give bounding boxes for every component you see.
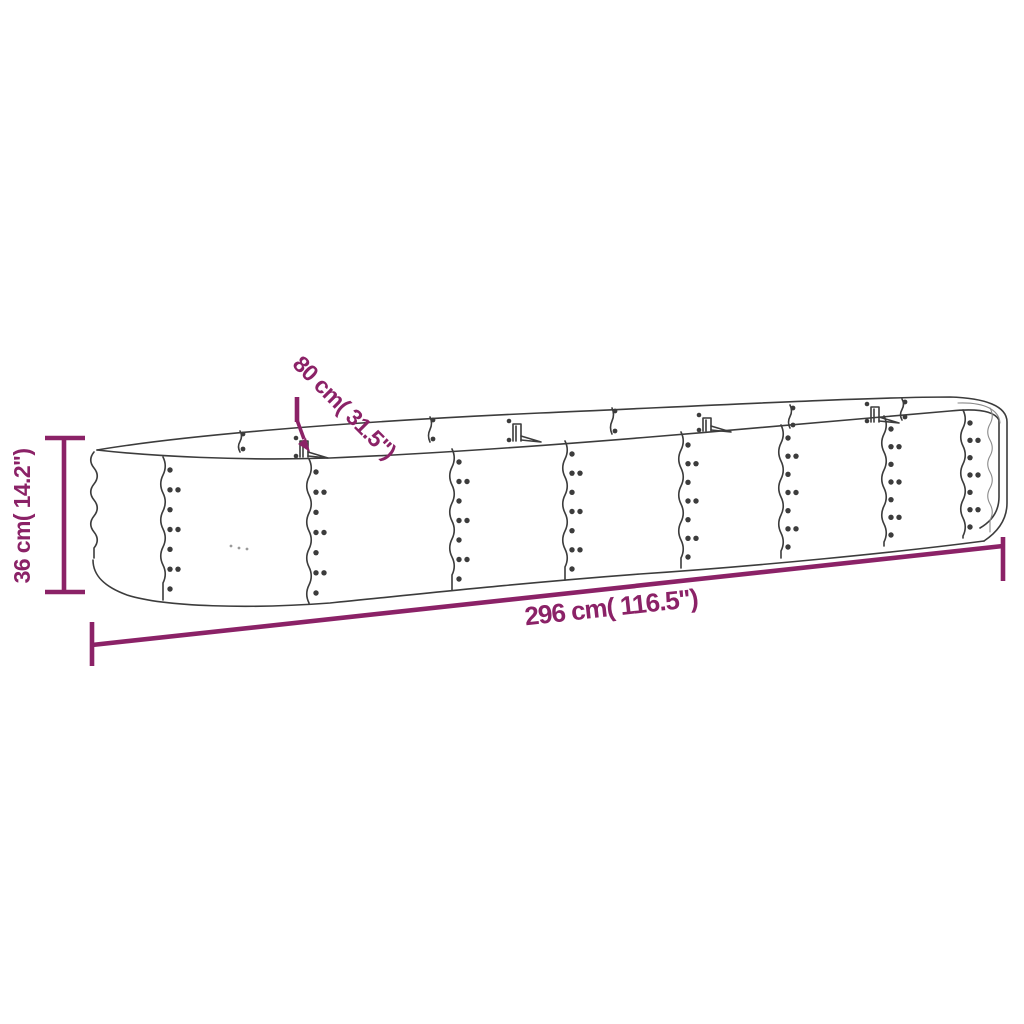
bolt-dot	[975, 507, 980, 512]
bolt-dot	[903, 415, 908, 420]
bolt-dot	[888, 497, 893, 502]
bolt-dot	[685, 498, 690, 503]
bolt-dot	[431, 418, 436, 423]
bolt-dot	[685, 554, 690, 559]
bolt-dot	[569, 566, 574, 571]
bolt-dot	[313, 590, 318, 595]
bolt-dot	[967, 524, 972, 529]
bolt-dot	[896, 479, 901, 484]
bolt-dot	[313, 530, 318, 535]
bolt-dot	[569, 470, 574, 475]
bolt-dot	[167, 527, 172, 532]
bolt-dot	[456, 518, 461, 523]
bolt-dot	[167, 566, 172, 571]
bolt-dot	[685, 536, 690, 541]
height-dimension-label: 36 cm( 14.2")	[9, 449, 35, 584]
bolt-dot	[903, 400, 908, 405]
bolt-dot	[313, 489, 318, 494]
bolt-dot	[294, 454, 299, 459]
bolt-dot	[294, 436, 299, 441]
bolt-dot	[685, 517, 690, 522]
bolt-dot	[967, 507, 972, 512]
bolt-dot	[167, 467, 172, 472]
bolt-dot	[577, 470, 582, 475]
bolt-dot	[456, 459, 461, 464]
surface-mark	[230, 545, 233, 548]
bolt-dot	[241, 432, 246, 437]
bolt-dot	[693, 536, 698, 541]
rim-opening-edge	[97, 410, 999, 528]
panel-seam	[563, 441, 568, 580]
bolt-dot	[507, 419, 512, 424]
bolt-dot	[888, 479, 893, 484]
bolt-dot	[975, 438, 980, 443]
bolt-dot	[785, 453, 790, 458]
bolt-dot	[175, 566, 180, 571]
bolt-dot	[464, 557, 469, 562]
bolt-dot	[685, 480, 690, 485]
bolt-dot	[785, 490, 790, 495]
product-dimension-diagram: 36 cm( 14.2") 80 cm( 31.5") 296 cm( 116.…	[0, 0, 1024, 1024]
bolt-dot	[167, 547, 172, 552]
panel-seam	[779, 425, 784, 558]
panel-seams	[161, 410, 966, 604]
bolt-dot	[321, 489, 326, 494]
bolt-dot	[865, 402, 870, 407]
bolt-dot	[967, 420, 972, 425]
panel-seam	[450, 449, 455, 590]
rim-clip-flap	[521, 436, 541, 442]
bolt-dot	[793, 453, 798, 458]
bolt-dot	[577, 509, 582, 514]
panel-seam	[882, 416, 887, 546]
bolt-dot	[967, 472, 972, 477]
bolt-dot	[313, 510, 318, 515]
bolt-dot	[693, 498, 698, 503]
bolt-dot	[865, 419, 870, 424]
panel-seam	[307, 459, 312, 604]
left-end-corrugation	[91, 452, 98, 558]
surface-mark	[246, 548, 249, 551]
rim-clip	[513, 424, 521, 441]
bolt-dot	[456, 557, 461, 562]
bolt-dot	[321, 570, 326, 575]
bolt-dot	[791, 423, 796, 428]
bolt-dot	[577, 547, 582, 552]
bolt-dot	[569, 528, 574, 533]
bolt-dot	[785, 526, 790, 531]
bolt-dot	[888, 444, 893, 449]
bolt-dot	[685, 442, 690, 447]
bolt-dot	[613, 409, 618, 414]
rim-clip	[703, 418, 711, 431]
bolt-dot	[569, 451, 574, 456]
garden-bed-line-art	[91, 397, 1007, 606]
panel-seam	[161, 457, 166, 600]
bolt-dot	[967, 438, 972, 443]
bolt-dot	[456, 537, 461, 542]
bolt-dot	[793, 490, 798, 495]
bolt-dot	[313, 570, 318, 575]
bolt-dot	[785, 472, 790, 477]
bolt-dot	[167, 586, 172, 591]
bolt-dot	[313, 469, 318, 474]
bolt-dot	[464, 479, 469, 484]
rim-clip	[871, 407, 879, 422]
rim-clip-flap	[711, 426, 731, 432]
rim-clip-flap	[879, 417, 899, 423]
bolt-dot	[785, 544, 790, 549]
bolt-dot	[167, 487, 172, 492]
end-corrugations	[91, 408, 993, 558]
length-dimension: 296 cm( 116.5")	[92, 537, 1003, 666]
bolt-dot	[785, 435, 790, 440]
bolt-dot	[431, 437, 436, 442]
bolt-dot	[613, 429, 618, 434]
bolt-dot	[697, 428, 702, 433]
bolt-dot	[464, 518, 469, 523]
bolt-dot	[569, 509, 574, 514]
bolt-dot	[569, 547, 574, 552]
bolt-dot	[967, 455, 972, 460]
depth-dimension-leader	[297, 420, 304, 439]
bolt-dot	[175, 527, 180, 532]
right-end-corrugation	[988, 408, 993, 532]
surface-mark	[238, 547, 241, 550]
bolt-dot	[888, 462, 893, 467]
bolt-dot	[785, 508, 790, 513]
bolt-dot	[456, 498, 461, 503]
panel-seam	[679, 432, 684, 568]
bolt-dot	[321, 530, 326, 535]
length-dimension-line	[92, 546, 1003, 645]
bolt-dot	[693, 461, 698, 466]
bolt-dot	[167, 507, 172, 512]
bolt-dot	[793, 526, 798, 531]
bolt-dot	[313, 550, 318, 555]
bolt-dot	[967, 490, 972, 495]
bolt-dot	[896, 444, 901, 449]
bolt-dot	[888, 426, 893, 431]
bolt-dot	[685, 461, 690, 466]
bolt-dot	[241, 447, 246, 452]
rim-clip-flap	[308, 452, 328, 458]
height-dimension: 36 cm( 14.2")	[9, 438, 85, 592]
bolt-dot	[697, 413, 702, 418]
bolt-dot	[791, 406, 796, 411]
bolt-dot	[569, 490, 574, 495]
bolt-dot	[175, 487, 180, 492]
bolt-dot	[507, 438, 512, 443]
bolt-dot	[456, 576, 461, 581]
bolt-dot	[896, 515, 901, 520]
bolt-dot	[888, 532, 893, 537]
bolt-dot	[975, 472, 980, 477]
depth-dimension: 80 cm( 31.5")	[288, 350, 402, 464]
panel-seam	[961, 410, 966, 538]
bolt-dot	[888, 515, 893, 520]
bolt-dot	[456, 479, 461, 484]
